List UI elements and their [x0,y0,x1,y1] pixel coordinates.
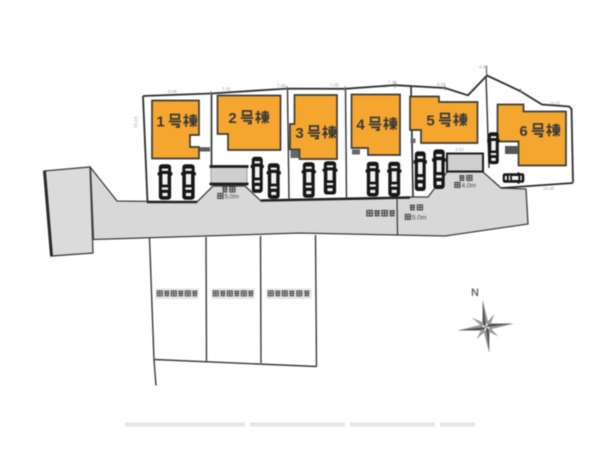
svg-text:6: 6 [519,123,527,140]
svg-text:7.45: 7.45 [222,87,231,92]
svg-text:1: 1 [156,113,164,130]
svg-text:7.45: 7.45 [330,83,339,88]
svg-text:10.19: 10.19 [133,116,138,128]
svg-text:16.80: 16.80 [543,186,555,191]
svg-text:N: N [471,287,479,299]
svg-text:3: 3 [295,125,303,142]
svg-text:2: 2 [228,110,236,127]
svg-text:5.0m: 5.0m [412,215,426,222]
svg-text:7.45: 7.45 [277,83,286,88]
svg-text:4.0m: 4.0m [462,183,476,190]
svg-text:4.99: 4.99 [479,65,488,70]
svg-text:7.45: 7.45 [388,80,397,85]
svg-text:14.01: 14.01 [549,101,561,106]
svg-text:8.09: 8.09 [168,89,177,94]
svg-text:5: 5 [426,112,434,129]
svg-text:5.0m: 5.0m [225,194,239,201]
svg-text:3.64: 3.64 [455,147,464,152]
svg-text:4: 4 [356,116,365,133]
